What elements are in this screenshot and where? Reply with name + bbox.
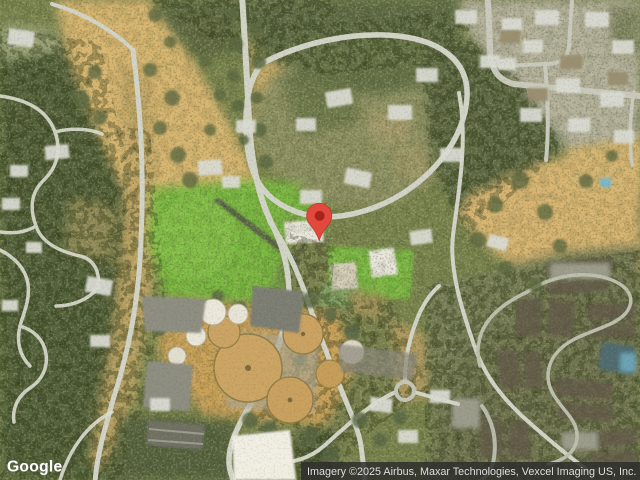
- svg-text:Imagery ©2025 Airbus, Maxar Te: Imagery ©2025 Airbus, Maxar Technologies…: [307, 466, 636, 478]
- svg-text:Google: Google: [7, 459, 63, 476]
